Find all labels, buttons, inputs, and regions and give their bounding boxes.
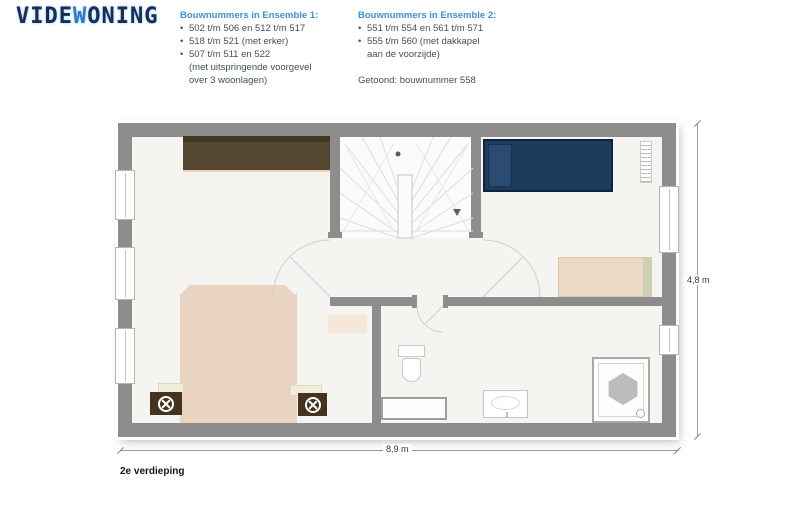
bullet-icon: • [180, 48, 189, 61]
width-dimension-label: 8,9 m [383, 444, 412, 454]
height-dimension-label: 4,8 m [684, 275, 713, 285]
ensemble-2-legend: Bouwnummers in Ensemble 2: •551 t/m 554 … [358, 9, 548, 87]
videwoning-logo: VIDEWONING [16, 4, 158, 29]
bullet-text: 518 t/m 521 (met erker) [189, 35, 288, 48]
door-bedroom2 [483, 240, 540, 297]
ensemble-1-title: Bouwnummers in Ensemble 1: [180, 9, 352, 22]
ensemble-1-continuation-2: over 3 woonlagen) [180, 74, 352, 87]
ensemble-2-bullet-2: •555 t/m 560 (met dakkapel [358, 35, 548, 48]
plan-linework [118, 123, 676, 437]
dimension-tick [674, 447, 681, 454]
ensemble-1-continuation-1: (met uitspringende voorgevel [180, 61, 352, 74]
bullet-text: 502 t/m 506 en 512 t/m 517 [189, 22, 305, 35]
bullet-icon: • [180, 22, 189, 35]
door-master-bedroom [273, 240, 330, 297]
staircase-newel [398, 175, 412, 238]
shown-bouwnummer: Getoond: bouwnummer 558 [358, 74, 548, 87]
floor-name-label: 2e verdieping [120, 466, 184, 477]
bullet-icon: • [358, 35, 367, 48]
logo-part3: ONING [87, 4, 158, 29]
page: VIDEWONING Bouwnummers in Ensemble 1: •5… [0, 0, 800, 516]
dimension-tick [694, 433, 701, 440]
ensemble-1-bullet-2: •518 t/m 521 (met erker) [180, 35, 352, 48]
bullet-text: 555 t/m 560 (met dakkapel [367, 35, 479, 48]
bullet-text: 551 t/m 554 en 561 t/m 571 [367, 22, 483, 35]
bullet-icon: • [180, 35, 189, 48]
door-bathroom [417, 306, 443, 332]
ensemble-2-continuation-1: aan de voorzijde) [358, 48, 548, 61]
ensemble-1-bullet-3: •507 t/m 511 en 522 [180, 48, 352, 61]
ensemble-2-bullet-1: •551 t/m 554 en 561 t/m 571 [358, 22, 548, 35]
logo-part2: W [73, 4, 87, 29]
ensemble-1-bullet-1: •502 t/m 506 en 512 t/m 517 [180, 22, 352, 35]
bullet-icon: • [358, 22, 367, 35]
ensemble-2-title: Bouwnummers in Ensemble 2: [358, 9, 548, 22]
door-swings [273, 240, 540, 332]
floor-plan [118, 123, 676, 437]
bullet-text: 507 t/m 511 en 522 [189, 48, 270, 61]
ensemble-1-legend: Bouwnummers in Ensemble 1: •502 t/m 506 … [180, 9, 352, 87]
logo-part1: VIDE [16, 4, 73, 29]
stair-start-dot [396, 152, 401, 157]
